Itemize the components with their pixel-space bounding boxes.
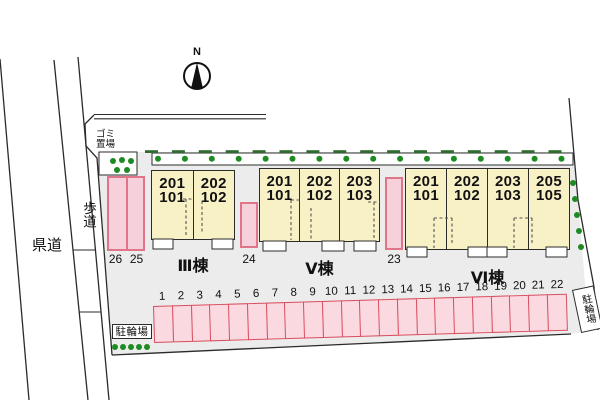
unit-cell: 202102 bbox=[446, 169, 487, 249]
unit-lower-number: 101 bbox=[152, 191, 193, 205]
hedge-mark bbox=[172, 150, 185, 153]
parking-space-25-label: 25 bbox=[126, 252, 147, 266]
road-lines bbox=[0, 57, 109, 400]
hedge-mark bbox=[549, 150, 562, 153]
parking-number: 10 bbox=[322, 285, 341, 300]
building-vi: 201101202102203103205105 bbox=[405, 168, 570, 250]
hedge-mark bbox=[522, 150, 535, 153]
sidewalk-label: 歩道 bbox=[78, 201, 98, 228]
hedge-mark bbox=[253, 150, 266, 153]
greenery-dot bbox=[478, 156, 484, 162]
greenery-dot bbox=[505, 156, 511, 162]
parking-number: 5 bbox=[228, 288, 247, 303]
hedge-mark bbox=[333, 150, 346, 153]
greenery-dot bbox=[209, 156, 215, 162]
site-plan: N 県道 歩道 ゴミ 置場 201101202102 2011012021022… bbox=[0, 0, 600, 400]
greenery-dot bbox=[144, 344, 150, 350]
building-v-name: Ⅴ棟 bbox=[259, 255, 380, 279]
bicycle-parking-left: 駐輪場 bbox=[112, 324, 152, 339]
greenery-dot bbox=[576, 228, 582, 234]
greenery-dot bbox=[112, 344, 118, 350]
unit-cell: 201101 bbox=[152, 171, 193, 239]
greenery-dot bbox=[290, 156, 296, 162]
greenery-dot bbox=[236, 156, 242, 162]
unit-lower-number: 101 bbox=[406, 189, 446, 203]
building-v: 201101202102203103 bbox=[259, 168, 380, 242]
parking-number: 17 bbox=[453, 282, 472, 297]
hedge-mark bbox=[199, 150, 212, 153]
hedge-mark bbox=[441, 150, 454, 153]
parking-number: 3 bbox=[190, 289, 209, 304]
building-iii-name: Ⅲ棟 bbox=[151, 252, 235, 276]
unit-cell: 202102 bbox=[193, 171, 235, 239]
parking-space-24-label: 24 bbox=[236, 252, 262, 266]
unit-lower-number: 103 bbox=[488, 189, 528, 203]
parking-number: 8 bbox=[284, 287, 303, 302]
unit-lower-number: 102 bbox=[447, 189, 487, 203]
hedge-mark bbox=[468, 150, 481, 153]
unit-lower-number: 105 bbox=[529, 189, 569, 203]
greenery-dot bbox=[182, 156, 188, 162]
greenery-dot bbox=[559, 156, 565, 162]
parking-number: 6 bbox=[247, 288, 266, 303]
compass-north-label: N bbox=[189, 46, 205, 58]
greenery-dot bbox=[263, 156, 269, 162]
hedge-mark bbox=[306, 150, 319, 153]
hedge-mark bbox=[280, 150, 293, 153]
greenery-dot bbox=[570, 180, 576, 186]
greenery-dot bbox=[424, 156, 430, 162]
parking-number: 22 bbox=[547, 279, 566, 294]
parking-space-pair-26-25 bbox=[107, 176, 145, 251]
bicycle-parking-right-label: 駐輪場 bbox=[577, 293, 598, 325]
parking-number: 14 bbox=[397, 283, 416, 298]
parking-number: 18 bbox=[472, 281, 491, 296]
road-line-outer bbox=[0, 59, 29, 400]
greenery-dot bbox=[120, 344, 126, 350]
parking-space-23-label: 23 bbox=[381, 252, 407, 266]
greenery-dot bbox=[128, 158, 134, 164]
hedge-mark bbox=[360, 150, 373, 153]
greenery-dot bbox=[532, 156, 538, 162]
hedge-mark bbox=[387, 150, 400, 153]
parking-space-pair-labels: 26 25 bbox=[105, 252, 147, 266]
parking-number: 7 bbox=[265, 287, 284, 302]
greenery-dot bbox=[316, 156, 322, 162]
greenery-dot bbox=[451, 156, 457, 162]
unit-cell: 203103 bbox=[487, 169, 528, 249]
parking-number: 2 bbox=[171, 290, 190, 305]
hedge-mark bbox=[226, 150, 239, 153]
parking-space-24 bbox=[240, 202, 258, 248]
greenery-dot bbox=[124, 167, 130, 173]
greenery-dot bbox=[128, 344, 134, 350]
building-iii: 201101202102 bbox=[151, 170, 235, 240]
greenery-dot bbox=[114, 167, 120, 173]
hedge-mark bbox=[495, 150, 508, 153]
unit-lower-number: 101 bbox=[260, 189, 299, 203]
bicycle-parking-left-label: 駐輪場 bbox=[116, 324, 149, 339]
hedge-mark bbox=[414, 150, 427, 153]
greenery-dot bbox=[572, 196, 578, 202]
parking-space-25 bbox=[126, 178, 143, 249]
garbage-area-label: ゴミ 置場 bbox=[96, 130, 115, 149]
parking-number: 13 bbox=[378, 284, 397, 299]
parking-number: 15 bbox=[416, 283, 435, 298]
north-arrow-icon bbox=[184, 63, 210, 90]
unit-lower-number: 102 bbox=[194, 191, 235, 205]
parking-space-cell bbox=[547, 294, 568, 332]
unit-cell: 202102 bbox=[299, 169, 339, 241]
unit-cell: 201101 bbox=[406, 169, 446, 249]
parking-space-23 bbox=[385, 177, 403, 250]
garbage-label-line2: 置場 bbox=[96, 140, 115, 150]
greenery-dot bbox=[136, 344, 142, 350]
greenery-dot bbox=[119, 157, 125, 163]
parking-number: 21 bbox=[529, 279, 548, 294]
parking-space-26 bbox=[109, 178, 126, 249]
unit-cell: 201101 bbox=[260, 169, 299, 241]
unit-cell: 205105 bbox=[528, 169, 569, 249]
parking-number: 16 bbox=[435, 282, 454, 297]
parking-number: 1 bbox=[153, 290, 172, 305]
parking-number: 12 bbox=[359, 284, 378, 299]
unit-lower-number: 102 bbox=[300, 189, 339, 203]
parking-number: 4 bbox=[209, 289, 228, 304]
greenery-dot bbox=[578, 244, 584, 250]
parking-space-26-label: 26 bbox=[105, 252, 126, 266]
unit-lower-number: 103 bbox=[340, 189, 379, 203]
unit-cell: 203103 bbox=[339, 169, 379, 241]
hedge-mark bbox=[145, 150, 158, 153]
greenery-dot bbox=[155, 156, 161, 162]
prefectural-road-label: 県道 bbox=[32, 234, 62, 255]
parking-number: 19 bbox=[491, 280, 510, 295]
greenery-dot bbox=[397, 156, 403, 162]
greenery-dot bbox=[370, 156, 376, 162]
greenery-dot bbox=[574, 212, 580, 218]
parking-number: 20 bbox=[510, 280, 529, 295]
parking-number: 9 bbox=[303, 286, 322, 301]
parking-number: 11 bbox=[341, 285, 360, 300]
greenery-dot bbox=[343, 156, 349, 162]
greenery-dot bbox=[110, 158, 116, 164]
